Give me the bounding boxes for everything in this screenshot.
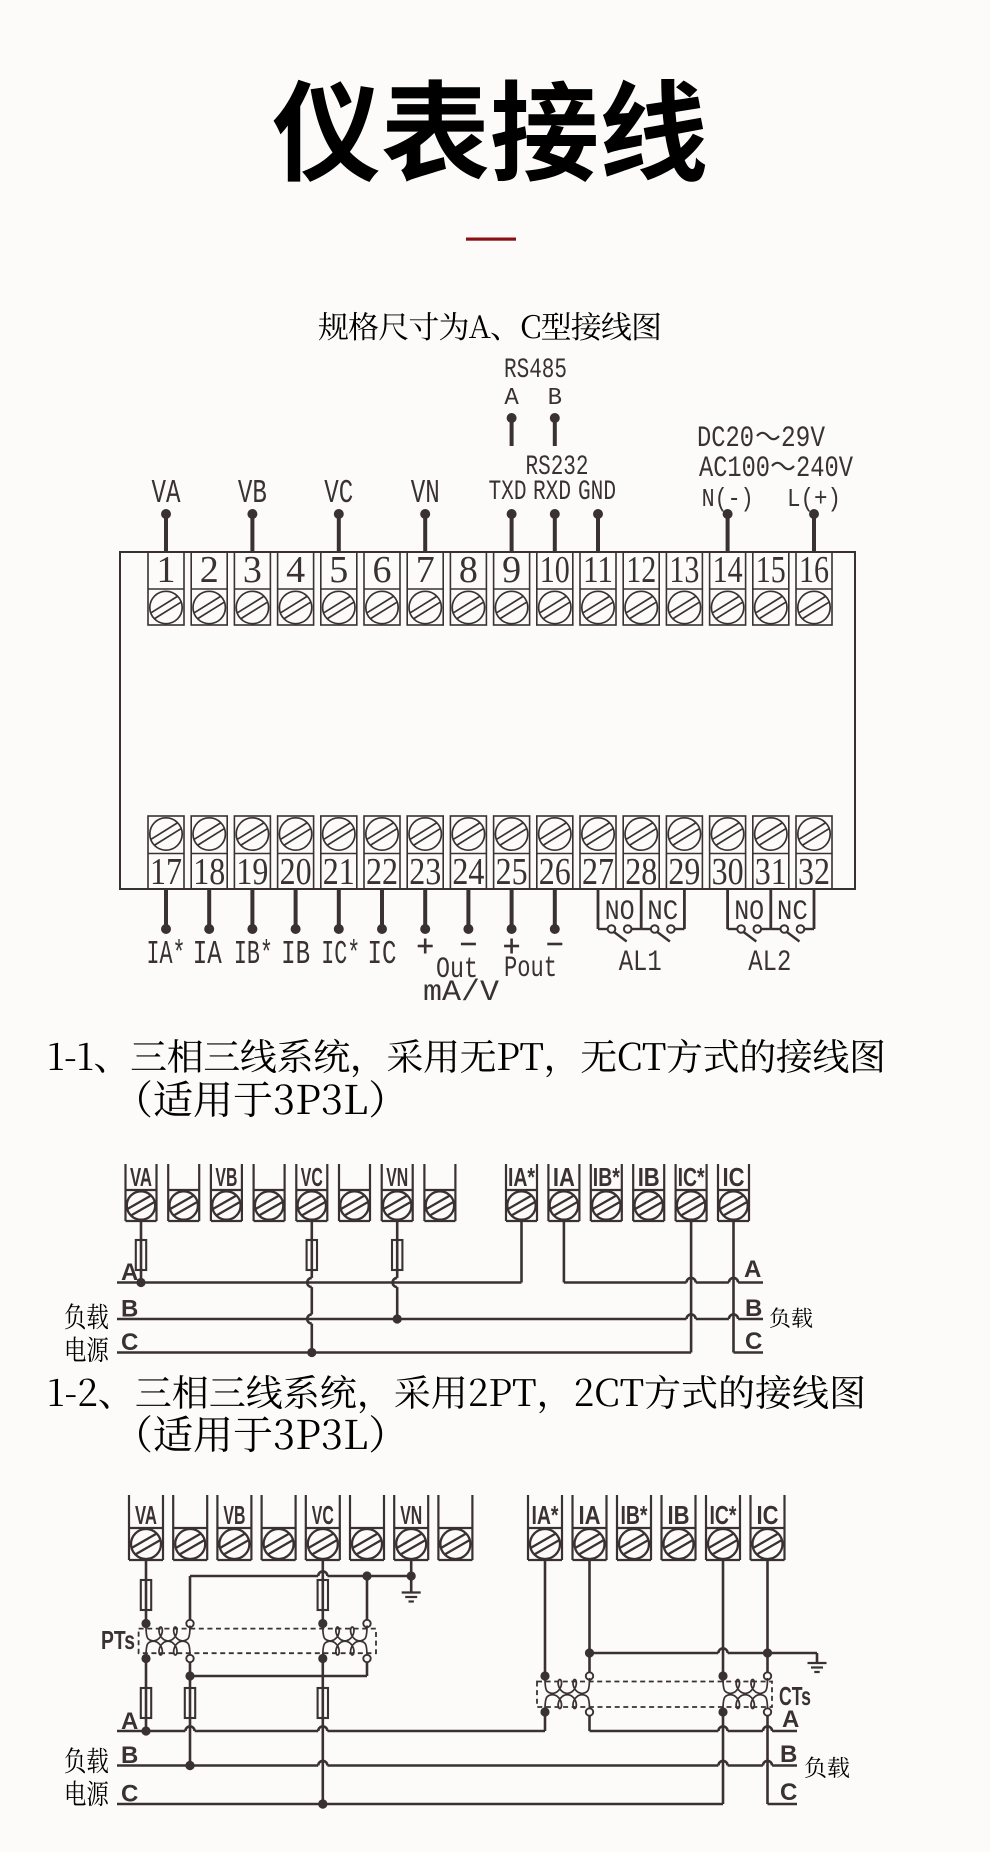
svg-text:PTs: PTs — [101, 1625, 135, 1655]
svg-text:AL2: AL2 — [748, 946, 791, 980]
svg-text:31: 31 — [755, 851, 787, 893]
svg-text:NO: NO — [605, 897, 635, 928]
svg-text:IA*: IA* — [532, 1500, 560, 1530]
svg-text:20: 20 — [280, 851, 312, 893]
svg-text:N(-): N(-) — [702, 484, 754, 514]
svg-text:6: 6 — [373, 549, 392, 591]
svg-text:B: B — [780, 1741, 797, 1768]
svg-text:8: 8 — [459, 549, 478, 591]
svg-text:17: 17 — [150, 851, 182, 893]
svg-text:29: 29 — [668, 851, 700, 893]
svg-text:27: 27 — [582, 851, 614, 893]
svg-text:B: B — [121, 1296, 138, 1323]
svg-text:IC: IC — [368, 936, 397, 973]
svg-text:3: 3 — [243, 549, 262, 591]
svg-text:IA: IA — [553, 1162, 575, 1192]
svg-text:A: A — [121, 1708, 138, 1735]
svg-text:IB: IB — [638, 1162, 660, 1192]
svg-text:9: 9 — [502, 549, 521, 591]
svg-text:IC*: IC* — [321, 936, 360, 973]
svg-text:VC: VC — [312, 1500, 334, 1530]
svg-text:26: 26 — [539, 851, 571, 893]
svg-text:21: 21 — [323, 851, 355, 893]
svg-text:C: C — [780, 1779, 797, 1806]
svg-text:VB: VB — [223, 1500, 245, 1530]
svg-text:VA: VA — [135, 1500, 157, 1530]
svg-text:RS485: RS485 — [504, 355, 567, 386]
svg-text:VN: VN — [411, 475, 440, 512]
svg-text:DC20: DC20 — [697, 422, 754, 456]
svg-text:VA: VA — [130, 1162, 152, 1192]
svg-text:25: 25 — [496, 851, 528, 893]
svg-text:C: C — [745, 1328, 762, 1355]
svg-text:VN: VN — [386, 1162, 408, 1192]
svg-text:C: C — [121, 1329, 138, 1356]
svg-text:23: 23 — [409, 851, 441, 893]
svg-text:30: 30 — [712, 851, 744, 893]
svg-text:B: B — [121, 1742, 138, 1769]
svg-text:14: 14 — [713, 549, 743, 591]
svg-text:1: 1 — [157, 549, 176, 591]
svg-text:A: A — [782, 1706, 799, 1733]
svg-text:28: 28 — [625, 851, 657, 893]
svg-text:13: 13 — [669, 549, 699, 591]
svg-text:A: A — [504, 385, 519, 412]
svg-text:12: 12 — [626, 549, 656, 591]
svg-text:IA*: IA* — [147, 936, 186, 973]
svg-text:TXD: TXD — [489, 477, 527, 508]
svg-text:AC100: AC100 — [699, 452, 770, 486]
svg-text:VC: VC — [324, 475, 353, 512]
svg-text:240V: 240V — [796, 452, 853, 486]
svg-text:16: 16 — [799, 549, 829, 591]
svg-text:AL1: AL1 — [619, 946, 662, 980]
svg-text:RS232: RS232 — [526, 452, 589, 483]
svg-text:mA/V: mA/V — [423, 976, 499, 1010]
svg-text:29V: 29V — [781, 422, 825, 456]
svg-text:A: A — [744, 1256, 761, 1283]
svg-text:7: 7 — [416, 549, 435, 591]
svg-text:NC: NC — [777, 897, 808, 928]
svg-text:10: 10 — [540, 549, 570, 591]
svg-text:5: 5 — [329, 549, 348, 591]
svg-text:11: 11 — [583, 549, 613, 591]
svg-text:32: 32 — [798, 851, 830, 893]
svg-text:B: B — [548, 385, 562, 412]
svg-text:VN: VN — [400, 1500, 422, 1530]
svg-text:VB: VB — [215, 1162, 237, 1192]
svg-text:IC: IC — [723, 1162, 745, 1192]
svg-text:VB: VB — [238, 475, 267, 512]
svg-text:IC*: IC* — [710, 1500, 738, 1530]
svg-text:IB*: IB* — [234, 936, 273, 973]
svg-text:IC*: IC* — [678, 1162, 706, 1192]
svg-text:VC: VC — [301, 1162, 323, 1192]
svg-text:IA: IA — [193, 936, 222, 973]
svg-text:24: 24 — [452, 851, 484, 893]
svg-text:NC: NC — [647, 897, 678, 928]
svg-text:C: C — [121, 1781, 138, 1808]
svg-text:15: 15 — [756, 549, 786, 591]
svg-text:IA*: IA* — [508, 1162, 536, 1192]
svg-text:IB*: IB* — [621, 1500, 649, 1530]
svg-text:19: 19 — [236, 851, 268, 893]
svg-text:IB: IB — [668, 1500, 690, 1530]
svg-text:18: 18 — [193, 851, 225, 893]
svg-text:A: A — [121, 1259, 138, 1286]
svg-text:NO: NO — [734, 897, 764, 928]
svg-text:IC: IC — [757, 1500, 779, 1530]
svg-text:IB*: IB* — [593, 1162, 621, 1192]
svg-text:2: 2 — [200, 549, 219, 591]
svg-text:IB: IB — [281, 936, 310, 973]
svg-text:L(+): L(+) — [787, 484, 841, 514]
svg-text:Pout: Pout — [504, 952, 557, 986]
svg-text:4: 4 — [286, 549, 305, 591]
svg-text:IA: IA — [579, 1500, 601, 1530]
svg-text:B: B — [745, 1295, 762, 1322]
svg-text:22: 22 — [366, 851, 398, 893]
svg-text:VA: VA — [152, 475, 181, 512]
